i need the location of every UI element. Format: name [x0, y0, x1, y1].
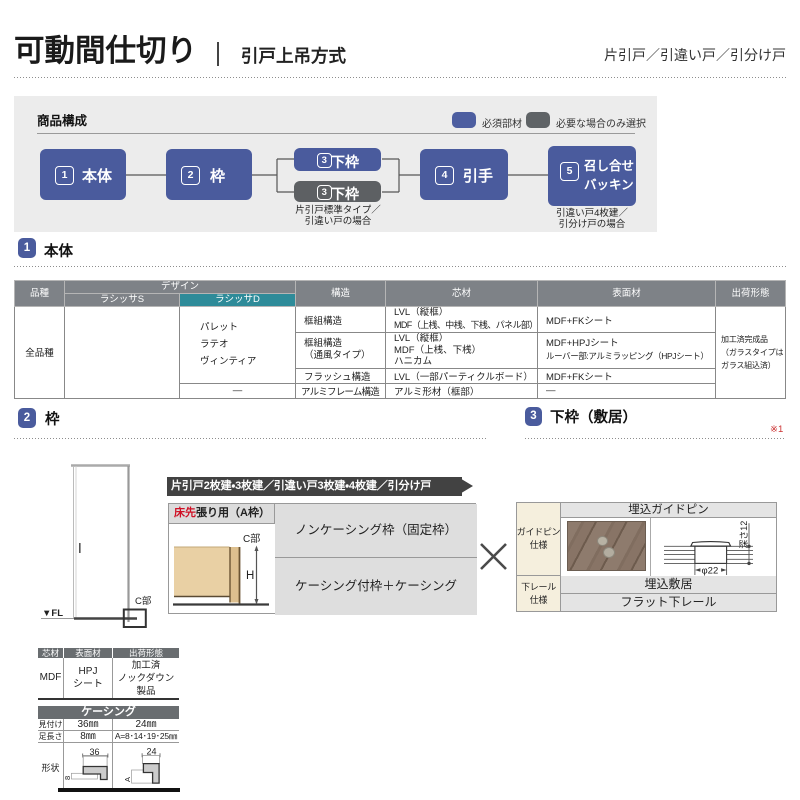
svg-text:φ22: φ22 — [702, 566, 719, 577]
svg-text:C部: C部 — [243, 533, 260, 545]
svg-text:8: 8 — [63, 776, 72, 780]
svg-text:▼FL: ▼FL — [42, 608, 63, 619]
svg-text:C部: C部 — [135, 596, 152, 607]
svg-text:H: H — [246, 570, 254, 582]
svg-text:A: A — [123, 777, 132, 782]
svg-text:深さ12: 深さ12 — [739, 521, 749, 549]
